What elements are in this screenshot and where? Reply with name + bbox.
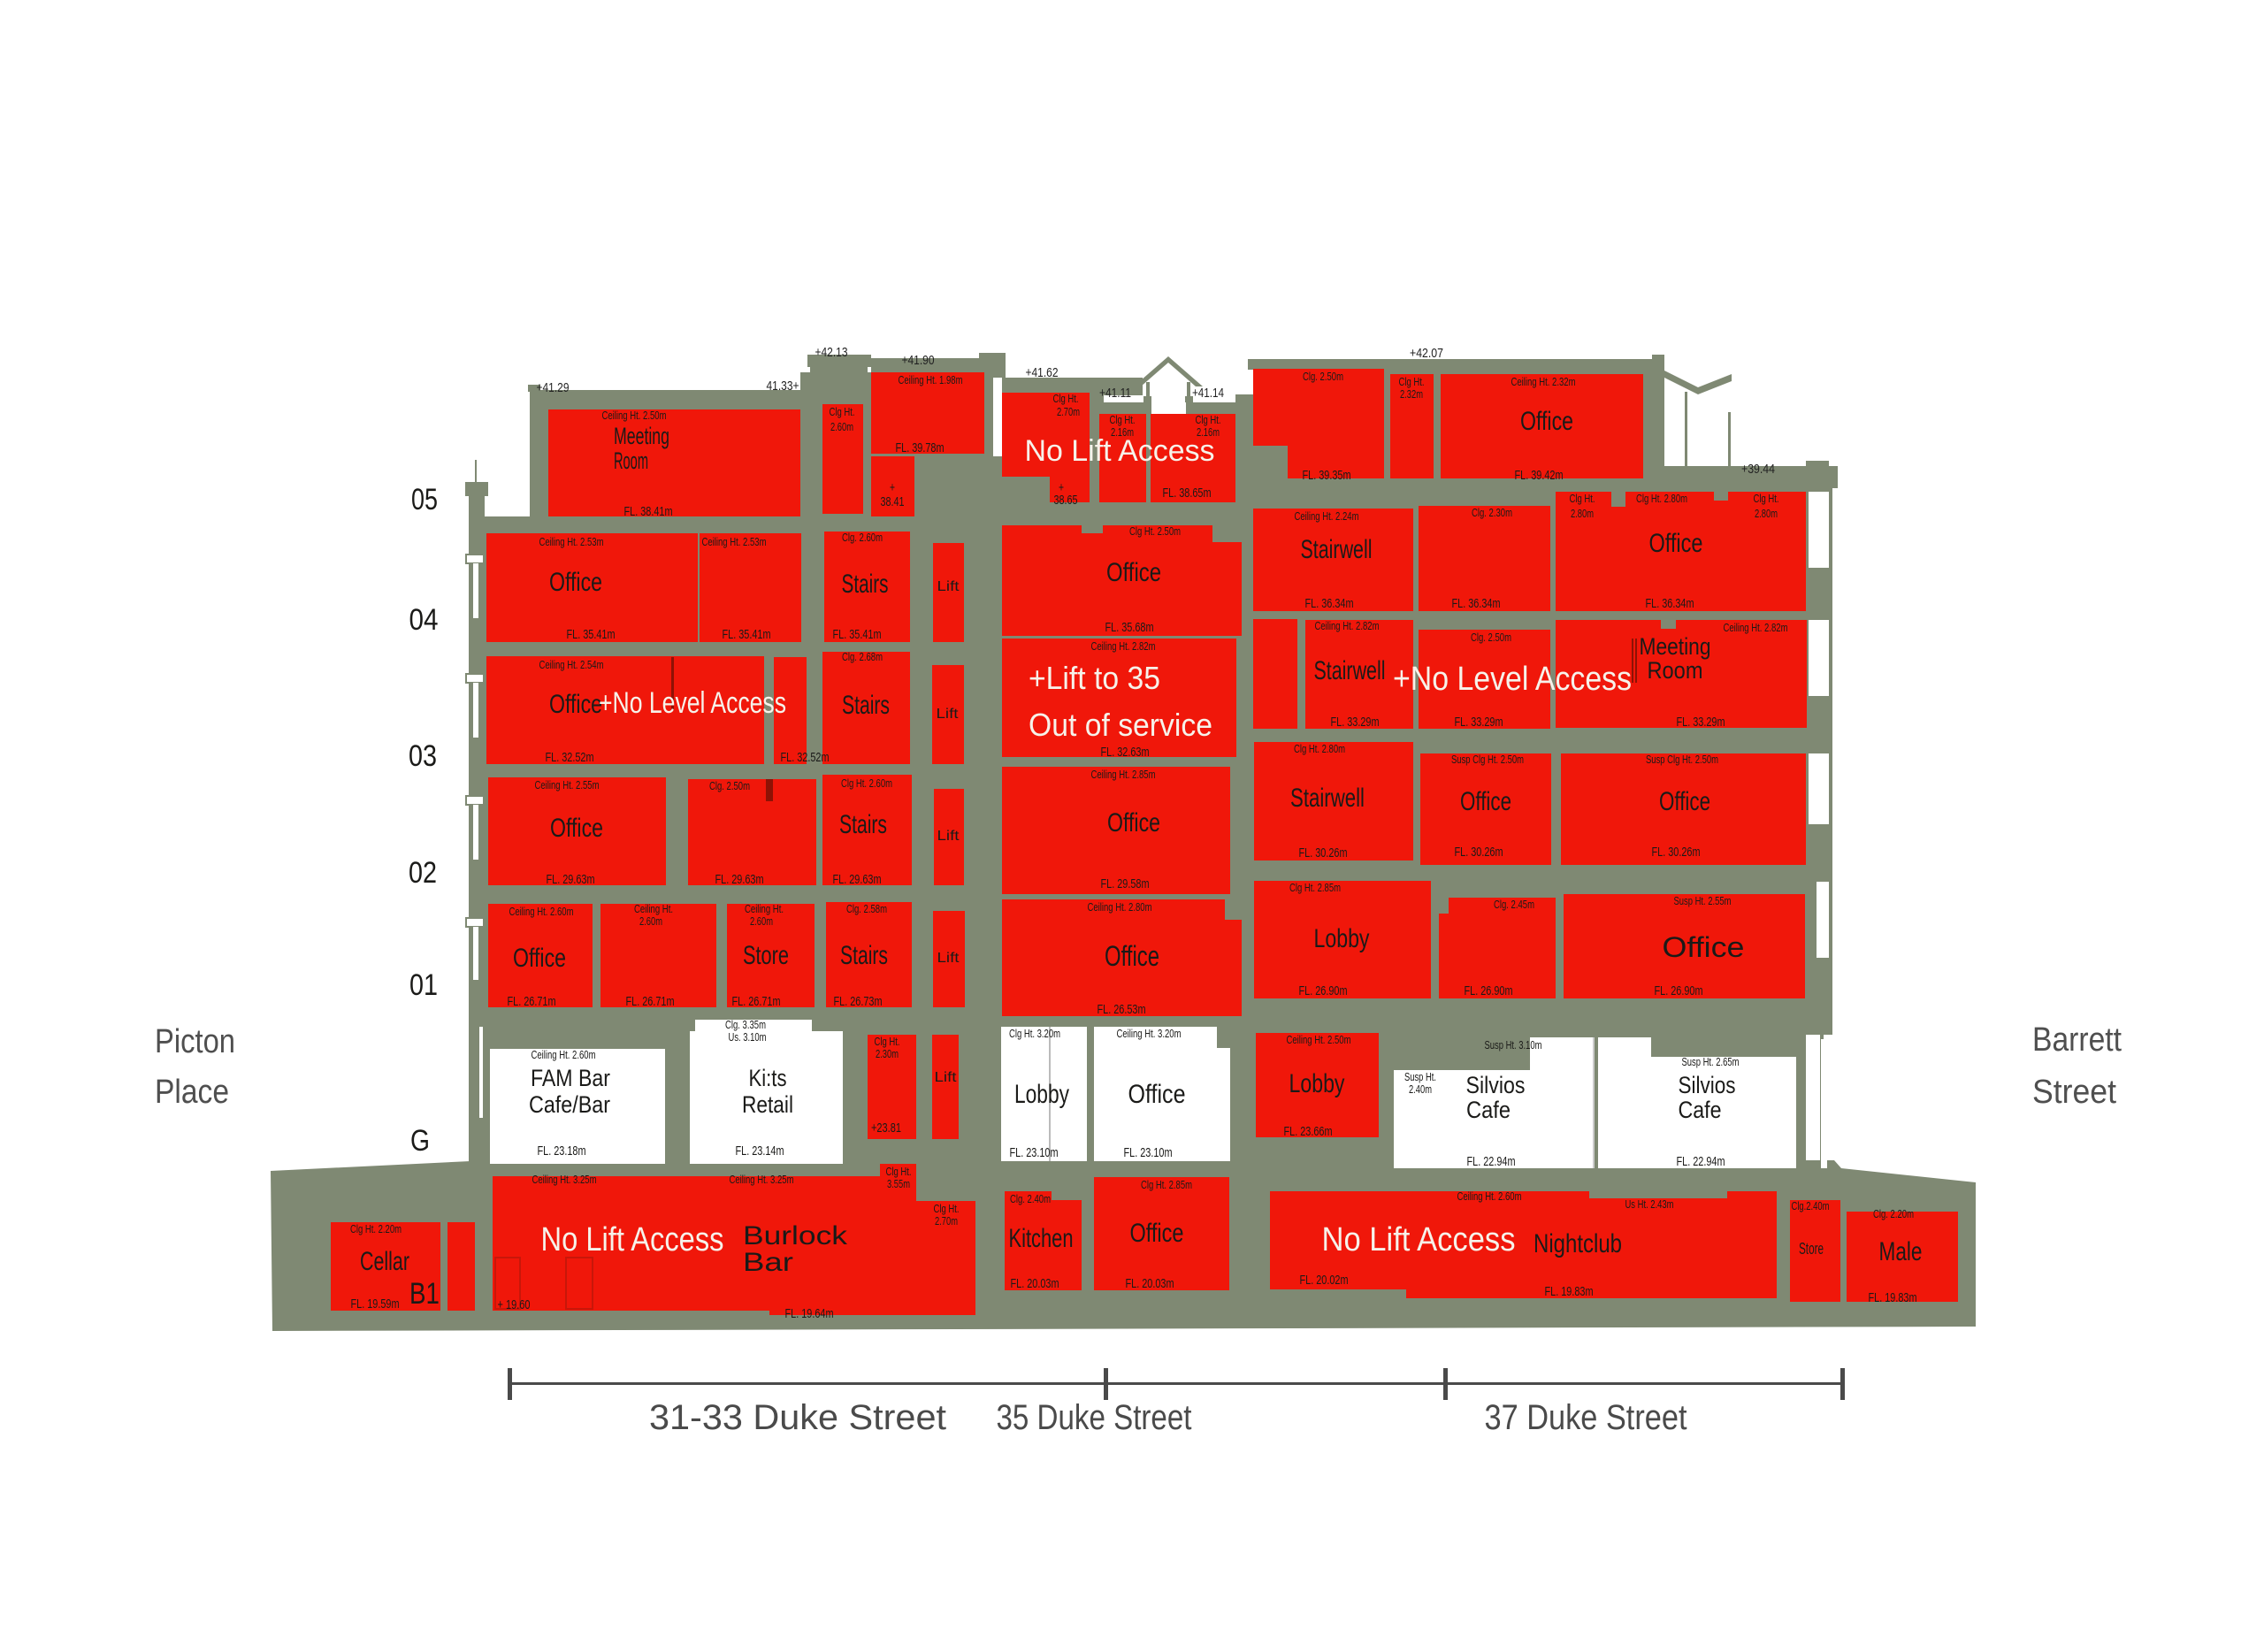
svg-text:Meeting: Meeting — [1640, 633, 1711, 660]
svg-text:Clg Ht.: Clg Ht. — [1196, 413, 1221, 426]
svg-text:FL. 39.35m: FL. 39.35m — [1303, 468, 1351, 483]
svg-text:FL. 29.63m: FL. 29.63m — [715, 872, 764, 887]
svg-text:Ceiling Ht. 2.60m: Ceiling Ht. 2.60m — [509, 905, 574, 918]
svg-text:+42.13: +42.13 — [815, 345, 848, 360]
svg-text:Cafe/Bar: Cafe/Bar — [529, 1091, 610, 1118]
svg-text:Clg Ht.: Clg Ht. — [934, 1202, 960, 1215]
svg-text:FL. 33.29m: FL. 33.29m — [1331, 715, 1380, 730]
svg-text:Office: Office — [1460, 787, 1511, 816]
svg-text:Clg. 2.58m: Clg. 2.58m — [846, 902, 887, 915]
svg-text:31-33 Duke Street: 31-33 Duke Street — [649, 1398, 946, 1437]
svg-text:Office: Office — [1663, 931, 1745, 963]
svg-text:Clg Ht.: Clg Ht. — [875, 1035, 900, 1048]
svg-text:Barrett: Barrett — [2032, 1021, 2122, 1059]
svg-text:FL. 26.73m: FL. 26.73m — [834, 994, 883, 1009]
svg-text:+No Level Access: +No Level Access — [1393, 661, 1632, 698]
svg-text:FL. 20.03m: FL. 20.03m — [1126, 1276, 1174, 1291]
svg-text:Office: Office — [1520, 407, 1573, 436]
svg-text:FL. 23.10m: FL. 23.10m — [1010, 1145, 1059, 1160]
svg-text:Clg Ht. 3.20m: Clg Ht. 3.20m — [1009, 1027, 1060, 1040]
svg-text:Bar: Bar — [743, 1248, 793, 1277]
svg-text:2.70m: 2.70m — [1057, 405, 1080, 418]
svg-text:Ceiling Ht.: Ceiling Ht. — [745, 902, 784, 915]
svg-text:Kitchen: Kitchen — [1009, 1224, 1074, 1253]
svg-text:2.80m: 2.80m — [1571, 507, 1594, 520]
svg-text:2.32m: 2.32m — [1400, 387, 1423, 401]
svg-text:FL. 38.41m: FL. 38.41m — [624, 504, 673, 519]
svg-text:FL. 36.34m: FL. 36.34m — [1646, 596, 1694, 611]
svg-text:Office: Office — [1105, 940, 1159, 972]
svg-text:Ceiling Ht. 2.85m: Ceiling Ht. 2.85m — [1091, 768, 1156, 781]
svg-text:Susp Ht. 3.10m: Susp Ht. 3.10m — [1485, 1038, 1542, 1052]
svg-text:+23.81: +23.81 — [871, 1120, 901, 1136]
svg-text:Ceiling Ht. 1.98m: Ceiling Ht. 1.98m — [899, 373, 963, 386]
svg-text:Susp Clg Ht. 2.50m: Susp Clg Ht. 2.50m — [1646, 753, 1718, 766]
svg-text:Lobby: Lobby — [1014, 1080, 1069, 1109]
svg-text:Clg Ht.: Clg Ht. — [1399, 375, 1425, 388]
svg-text:04: 04 — [409, 603, 439, 637]
svg-text:FL. 38.65m: FL. 38.65m — [1163, 486, 1212, 501]
svg-text:FL. 26.71m: FL. 26.71m — [508, 994, 556, 1009]
svg-text:FL. 32.63m: FL. 32.63m — [1101, 745, 1150, 760]
svg-text:Susp Ht. 2.65m: Susp Ht. 2.65m — [1682, 1055, 1740, 1068]
svg-text:FL. 23.10m: FL. 23.10m — [1124, 1145, 1173, 1160]
svg-text:Ceiling Ht. 2.53m: Ceiling Ht. 2.53m — [539, 535, 604, 548]
svg-text:Office: Office — [550, 814, 603, 843]
svg-text:03: 03 — [409, 739, 437, 773]
svg-text:05: 05 — [411, 483, 438, 516]
svg-text:Office: Office — [1106, 558, 1161, 587]
svg-text:Ceiling Ht. 2.53m: Ceiling Ht. 2.53m — [702, 535, 767, 548]
svg-text:+Lift to 35: +Lift to 35 — [1029, 660, 1160, 696]
svg-text:Stairwell: Stairwell — [1290, 784, 1365, 813]
svg-text:Ceiling Ht. 2.50m: Ceiling Ht. 2.50m — [602, 409, 667, 422]
svg-text:FL. 35.41m: FL. 35.41m — [833, 627, 882, 642]
svg-text:+41.11: +41.11 — [1099, 386, 1131, 401]
svg-text:Clg. 2.45m: Clg. 2.45m — [1494, 898, 1534, 911]
svg-text:+41.14: +41.14 — [1192, 386, 1224, 401]
svg-text:Us. 3.10m: Us. 3.10m — [729, 1030, 767, 1044]
svg-text:Clg. 2.20m: Clg. 2.20m — [1873, 1207, 1914, 1220]
svg-text:2.60m: 2.60m — [830, 420, 853, 433]
svg-text:FL. 39.78m: FL. 39.78m — [896, 440, 945, 455]
svg-text:+41.29: +41.29 — [537, 380, 570, 395]
svg-text:Ceiling Ht. 2.82m: Ceiling Ht. 2.82m — [1315, 619, 1380, 632]
svg-text:FL. 26.71m: FL. 26.71m — [626, 994, 675, 1009]
svg-text:38.41: 38.41 — [881, 494, 905, 509]
svg-text:FL. 29.63m: FL. 29.63m — [833, 872, 882, 887]
svg-text:FL. 30.26m: FL. 30.26m — [1455, 845, 1503, 860]
svg-text:Clg Ht. 2.80m: Clg Ht. 2.80m — [1636, 492, 1687, 505]
svg-text:Clg. 2.50m: Clg. 2.50m — [1303, 370, 1343, 383]
svg-text:FL. 30.26m: FL. 30.26m — [1652, 845, 1701, 860]
svg-text:Cellar: Cellar — [360, 1247, 409, 1276]
svg-text:Picton: Picton — [155, 1023, 235, 1060]
svg-text:Lift: Lift — [937, 579, 960, 594]
svg-text:FL. 32.52m: FL. 32.52m — [546, 750, 594, 765]
svg-text:Lobby: Lobby — [1314, 924, 1370, 953]
svg-text:Cafe: Cafe — [1466, 1097, 1511, 1123]
svg-text:Clg. 2.50m: Clg. 2.50m — [1471, 631, 1511, 644]
svg-text:2.60m: 2.60m — [750, 914, 773, 928]
svg-text:Ceiling Ht. 2.60m: Ceiling Ht. 2.60m — [532, 1048, 596, 1061]
svg-text:Us Ht. 2.43m: Us Ht. 2.43m — [1625, 1197, 1674, 1211]
svg-text:FL. 30.26m: FL. 30.26m — [1299, 845, 1348, 860]
svg-text:Ceiling Ht. 2.50m: Ceiling Ht. 2.50m — [1287, 1033, 1351, 1046]
svg-text:Clg Ht. 2.20m: Clg Ht. 2.20m — [350, 1222, 402, 1235]
svg-text:Lift: Lift — [937, 829, 960, 844]
svg-text:Ceiling Ht. 2.24m: Ceiling Ht. 2.24m — [1295, 509, 1359, 523]
svg-text:Clg. 2.50m: Clg. 2.50m — [709, 779, 750, 792]
svg-text:No Lift Access: No Lift Access — [1322, 1221, 1516, 1258]
svg-text:Clg Ht.: Clg Ht. — [1570, 492, 1595, 505]
svg-text:Office: Office — [1130, 1219, 1184, 1248]
svg-text:FL. 35.41m: FL. 35.41m — [723, 627, 771, 642]
svg-text:Ceiling Ht. 2.82m: Ceiling Ht. 2.82m — [1724, 621, 1788, 634]
svg-text:Room: Room — [614, 447, 648, 474]
svg-text:Ceiling Ht. 3.25m: Ceiling Ht. 3.25m — [730, 1173, 794, 1186]
svg-text:Clg. 2.68m: Clg. 2.68m — [842, 650, 883, 663]
svg-text:FL. 39.42m: FL. 39.42m — [1515, 468, 1564, 483]
svg-text:No Lift Access: No Lift Access — [541, 1221, 724, 1258]
svg-text:FL. 36.34m: FL. 36.34m — [1452, 596, 1501, 611]
svg-text:FL. 36.34m: FL. 36.34m — [1305, 596, 1354, 611]
svg-text:+39.44: +39.44 — [1741, 462, 1775, 477]
svg-text:Retail: Retail — [742, 1091, 793, 1118]
svg-text:Ceiling Ht. 2.80m: Ceiling Ht. 2.80m — [1088, 900, 1152, 914]
svg-text:Clg. 2.60m: Clg. 2.60m — [842, 531, 883, 544]
svg-text:No Lift Access: No Lift Access — [1025, 434, 1215, 468]
svg-text:Clg. 2.40m: Clg. 2.40m — [1010, 1192, 1051, 1205]
svg-text:+42.07: +42.07 — [1410, 346, 1443, 361]
svg-text:Stairwell: Stairwell — [1301, 535, 1373, 564]
svg-text:Clg Ht.: Clg Ht. — [1110, 413, 1136, 426]
svg-text:Ceiling Ht.: Ceiling Ht. — [634, 902, 673, 915]
svg-text:+ 19.60: + 19.60 — [498, 1297, 531, 1312]
svg-text:Street: Street — [2032, 1074, 2116, 1111]
svg-text:Ceiling Ht. 3.25m: Ceiling Ht. 3.25m — [532, 1173, 597, 1186]
svg-text:Lift: Lift — [937, 707, 960, 722]
svg-text:Out of service: Out of service — [1029, 707, 1212, 743]
svg-text:Stairwell: Stairwell — [1314, 656, 1386, 685]
svg-text:35 Duke Street: 35 Duke Street — [997, 1398, 1192, 1437]
svg-text:2.70m: 2.70m — [935, 1214, 958, 1228]
svg-text:Ceiling Ht. 2.32m: Ceiling Ht. 2.32m — [1511, 375, 1576, 388]
svg-text:Clg Ht.: Clg Ht. — [1754, 492, 1779, 505]
svg-text:FL. 22.94m: FL. 22.94m — [1677, 1154, 1725, 1169]
svg-text:Ceiling Ht. 3.20m: Ceiling Ht. 3.20m — [1117, 1027, 1182, 1040]
svg-text:Lift: Lift — [935, 1070, 958, 1085]
svg-text:FL. 23.18m: FL. 23.18m — [538, 1143, 586, 1159]
svg-text:Office: Office — [1659, 787, 1710, 816]
svg-text:Stairs: Stairs — [840, 941, 888, 970]
svg-text:FL. 23.66m: FL. 23.66m — [1284, 1124, 1333, 1139]
svg-text:Susp Ht.: Susp Ht. — [1404, 1070, 1436, 1083]
svg-text:FL. 35.41m: FL. 35.41m — [567, 627, 616, 642]
svg-text:Clg Ht.: Clg Ht. — [886, 1165, 912, 1178]
svg-text:02: 02 — [409, 856, 437, 890]
svg-text:FL. 19.83m: FL. 19.83m — [1545, 1284, 1594, 1299]
svg-text:38.65: 38.65 — [1054, 493, 1078, 508]
svg-text:Clg Ht. 2.80m: Clg Ht. 2.80m — [1294, 742, 1345, 755]
svg-text:Room: Room — [1648, 657, 1703, 684]
svg-text:Clg. 2.30m: Clg. 2.30m — [1472, 506, 1512, 519]
svg-text:+: + — [890, 480, 895, 495]
svg-text:FL. 26.90m: FL. 26.90m — [1465, 983, 1513, 998]
svg-text:Clg Ht. 2.85m: Clg Ht. 2.85m — [1141, 1178, 1192, 1191]
svg-text:Ceiling Ht. 2.82m: Ceiling Ht. 2.82m — [1091, 639, 1156, 653]
svg-text:Clg Ht. 2.85m: Clg Ht. 2.85m — [1289, 881, 1341, 894]
svg-text:FL. 20.03m: FL. 20.03m — [1011, 1276, 1059, 1291]
svg-text:FL. 19.64m: FL. 19.64m — [785, 1306, 834, 1321]
svg-text:FL. 35.68m: FL. 35.68m — [1105, 620, 1154, 635]
svg-text:Silvios: Silvios — [1679, 1072, 1736, 1098]
svg-text:FL. 23.14m: FL. 23.14m — [736, 1143, 784, 1159]
svg-text:B1: B1 — [409, 1277, 440, 1311]
svg-text:Silvios: Silvios — [1466, 1072, 1526, 1098]
svg-text:Stairs: Stairs — [842, 691, 890, 720]
svg-text:FL. 26.53m: FL. 26.53m — [1098, 1002, 1146, 1017]
svg-text:Office: Office — [549, 568, 602, 597]
svg-text:FL. 26.71m: FL. 26.71m — [732, 994, 781, 1009]
svg-text:Office: Office — [513, 944, 566, 973]
svg-text:Ceiling Ht. 2.55m: Ceiling Ht. 2.55m — [535, 778, 600, 792]
svg-text:Male: Male — [1879, 1237, 1923, 1266]
svg-text:Burlock: Burlock — [743, 1221, 848, 1250]
svg-text:FL. 29.63m: FL. 29.63m — [547, 872, 595, 887]
svg-text:Stairs: Stairs — [842, 570, 889, 599]
svg-text:FL. 26.90m: FL. 26.90m — [1299, 983, 1348, 998]
svg-text:Clg Ht. 2.50m: Clg Ht. 2.50m — [1129, 524, 1181, 538]
svg-text:Clg Ht.: Clg Ht. — [1053, 392, 1079, 405]
svg-text:2.30m: 2.30m — [876, 1047, 899, 1060]
svg-text:G: G — [410, 1124, 430, 1158]
svg-text:Nightclub: Nightclub — [1534, 1229, 1622, 1258]
svg-text:2.80m: 2.80m — [1755, 507, 1778, 520]
svg-text:+41.62: +41.62 — [1026, 365, 1059, 380]
svg-text:Store: Store — [743, 941, 789, 970]
svg-text:37 Duke Street: 37 Duke Street — [1485, 1398, 1687, 1437]
svg-text:Office: Office — [1128, 1080, 1186, 1109]
svg-text:FL. 19.83m: FL. 19.83m — [1869, 1290, 1917, 1305]
svg-text:FL. 22.94m: FL. 22.94m — [1467, 1154, 1516, 1169]
svg-text:Office: Office — [1649, 529, 1703, 558]
svg-text:Susp Clg Ht. 2.50m: Susp Clg Ht. 2.50m — [1451, 753, 1524, 766]
svg-text:Susp Ht. 2.55m: Susp Ht. 2.55m — [1674, 894, 1732, 907]
svg-text:FL. 33.29m: FL. 33.29m — [1677, 715, 1725, 730]
svg-text:FL. 20.02m: FL. 20.02m — [1300, 1273, 1349, 1288]
svg-text:FL. 26.90m: FL. 26.90m — [1655, 983, 1703, 998]
svg-text:01: 01 — [409, 968, 438, 1002]
svg-text:+No Level Access: +No Level Access — [599, 686, 786, 720]
svg-text:FL. 32.52m: FL. 32.52m — [781, 750, 830, 765]
svg-text:Cafe: Cafe — [1679, 1097, 1722, 1123]
svg-text:Store: Store — [1799, 1240, 1824, 1258]
svg-text:Stairs: Stairs — [839, 810, 887, 839]
svg-text:Clg. 3.35m: Clg. 3.35m — [725, 1018, 766, 1031]
svg-text:FL. 29.58m: FL. 29.58m — [1101, 876, 1150, 891]
svg-text:41.33+: 41.33+ — [767, 379, 799, 394]
svg-text:Office: Office — [1107, 808, 1160, 837]
svg-text:+41.90: +41.90 — [902, 353, 935, 368]
svg-text:Place: Place — [155, 1074, 229, 1111]
svg-text:Ki:ts: Ki:ts — [749, 1065, 787, 1091]
svg-text:FL. 33.29m: FL. 33.29m — [1455, 715, 1503, 730]
svg-text:Lift: Lift — [937, 951, 960, 966]
svg-text:2.60m: 2.60m — [639, 914, 662, 928]
svg-text:Ceiling Ht. 2.54m: Ceiling Ht. 2.54m — [539, 658, 604, 671]
svg-text:FL. 19.59m: FL. 19.59m — [351, 1296, 400, 1312]
svg-text:3.55m: 3.55m — [887, 1177, 910, 1190]
svg-text:Office: Office — [549, 690, 602, 719]
svg-text:Ceiling Ht. 2.60m: Ceiling Ht. 2.60m — [1457, 1189, 1522, 1203]
svg-text:Clg Ht.: Clg Ht. — [830, 405, 855, 418]
svg-text:Meeting: Meeting — [614, 423, 669, 449]
svg-text:Clg Ht. 2.60m: Clg Ht. 2.60m — [841, 776, 892, 790]
svg-text:Lobby: Lobby — [1289, 1069, 1345, 1098]
svg-text:2.40m: 2.40m — [1409, 1082, 1432, 1096]
svg-text:FAM Bar: FAM Bar — [531, 1065, 610, 1091]
svg-text:Clg.2.40m: Clg.2.40m — [1792, 1199, 1830, 1212]
